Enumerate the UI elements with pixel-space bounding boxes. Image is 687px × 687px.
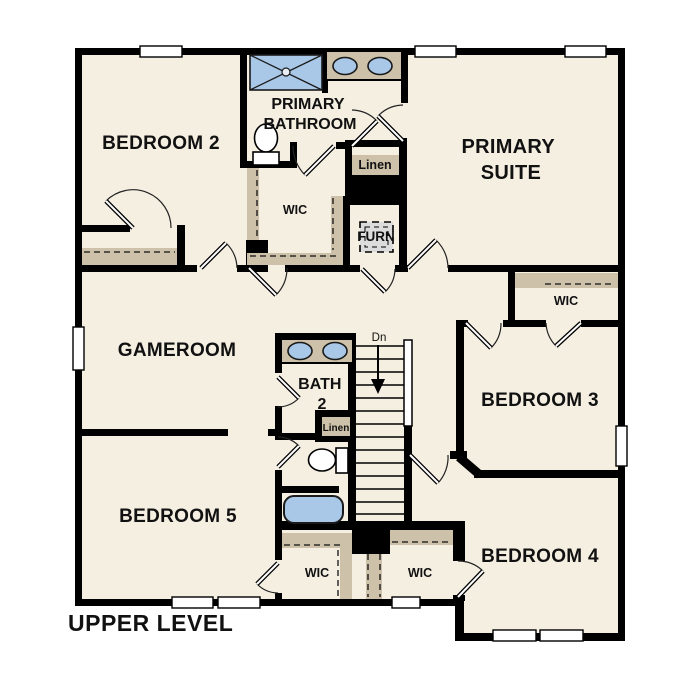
- floorplan-canvas: BEDROOM 2 PRIMARY BATHROOM WIC Linen FUR…: [0, 0, 687, 687]
- label-bedroom3: BEDROOM 3: [481, 390, 599, 411]
- label-bedroom5: BEDROOM 5: [119, 506, 237, 527]
- upper-level-floorplan: BEDROOM 2 PRIMARY BATHROOM WIC Linen FUR…: [0, 0, 687, 687]
- primary-vanity-sinks-icon: [327, 52, 401, 80]
- label-primary-wic: WIC: [283, 203, 307, 217]
- bathtub-icon: [284, 496, 343, 523]
- label-gameroom: GAMEROOM: [118, 340, 237, 361]
- stair-railing: [404, 340, 412, 426]
- label-furnace: FURN: [357, 229, 395, 244]
- label-bedroom4-wic: WIC: [408, 566, 432, 580]
- level-title: UPPER LEVEL: [68, 610, 233, 636]
- bath2-toilet-icon: [309, 448, 349, 473]
- label-stairs-dn: Dn: [372, 332, 387, 344]
- label-bedroom3-wic: WIC: [554, 294, 578, 308]
- shower-icon: [250, 55, 322, 90]
- label-bedroom5-wic: WIC: [305, 566, 329, 580]
- label-bedroom2: BEDROOM 2: [102, 133, 220, 154]
- label-primary-linen: Linen: [358, 158, 391, 172]
- label-bath2-linen: Linen: [323, 423, 350, 434]
- bath2-vanity-sinks-icon: [282, 340, 352, 363]
- label-bedroom4: BEDROOM 4: [481, 546, 599, 567]
